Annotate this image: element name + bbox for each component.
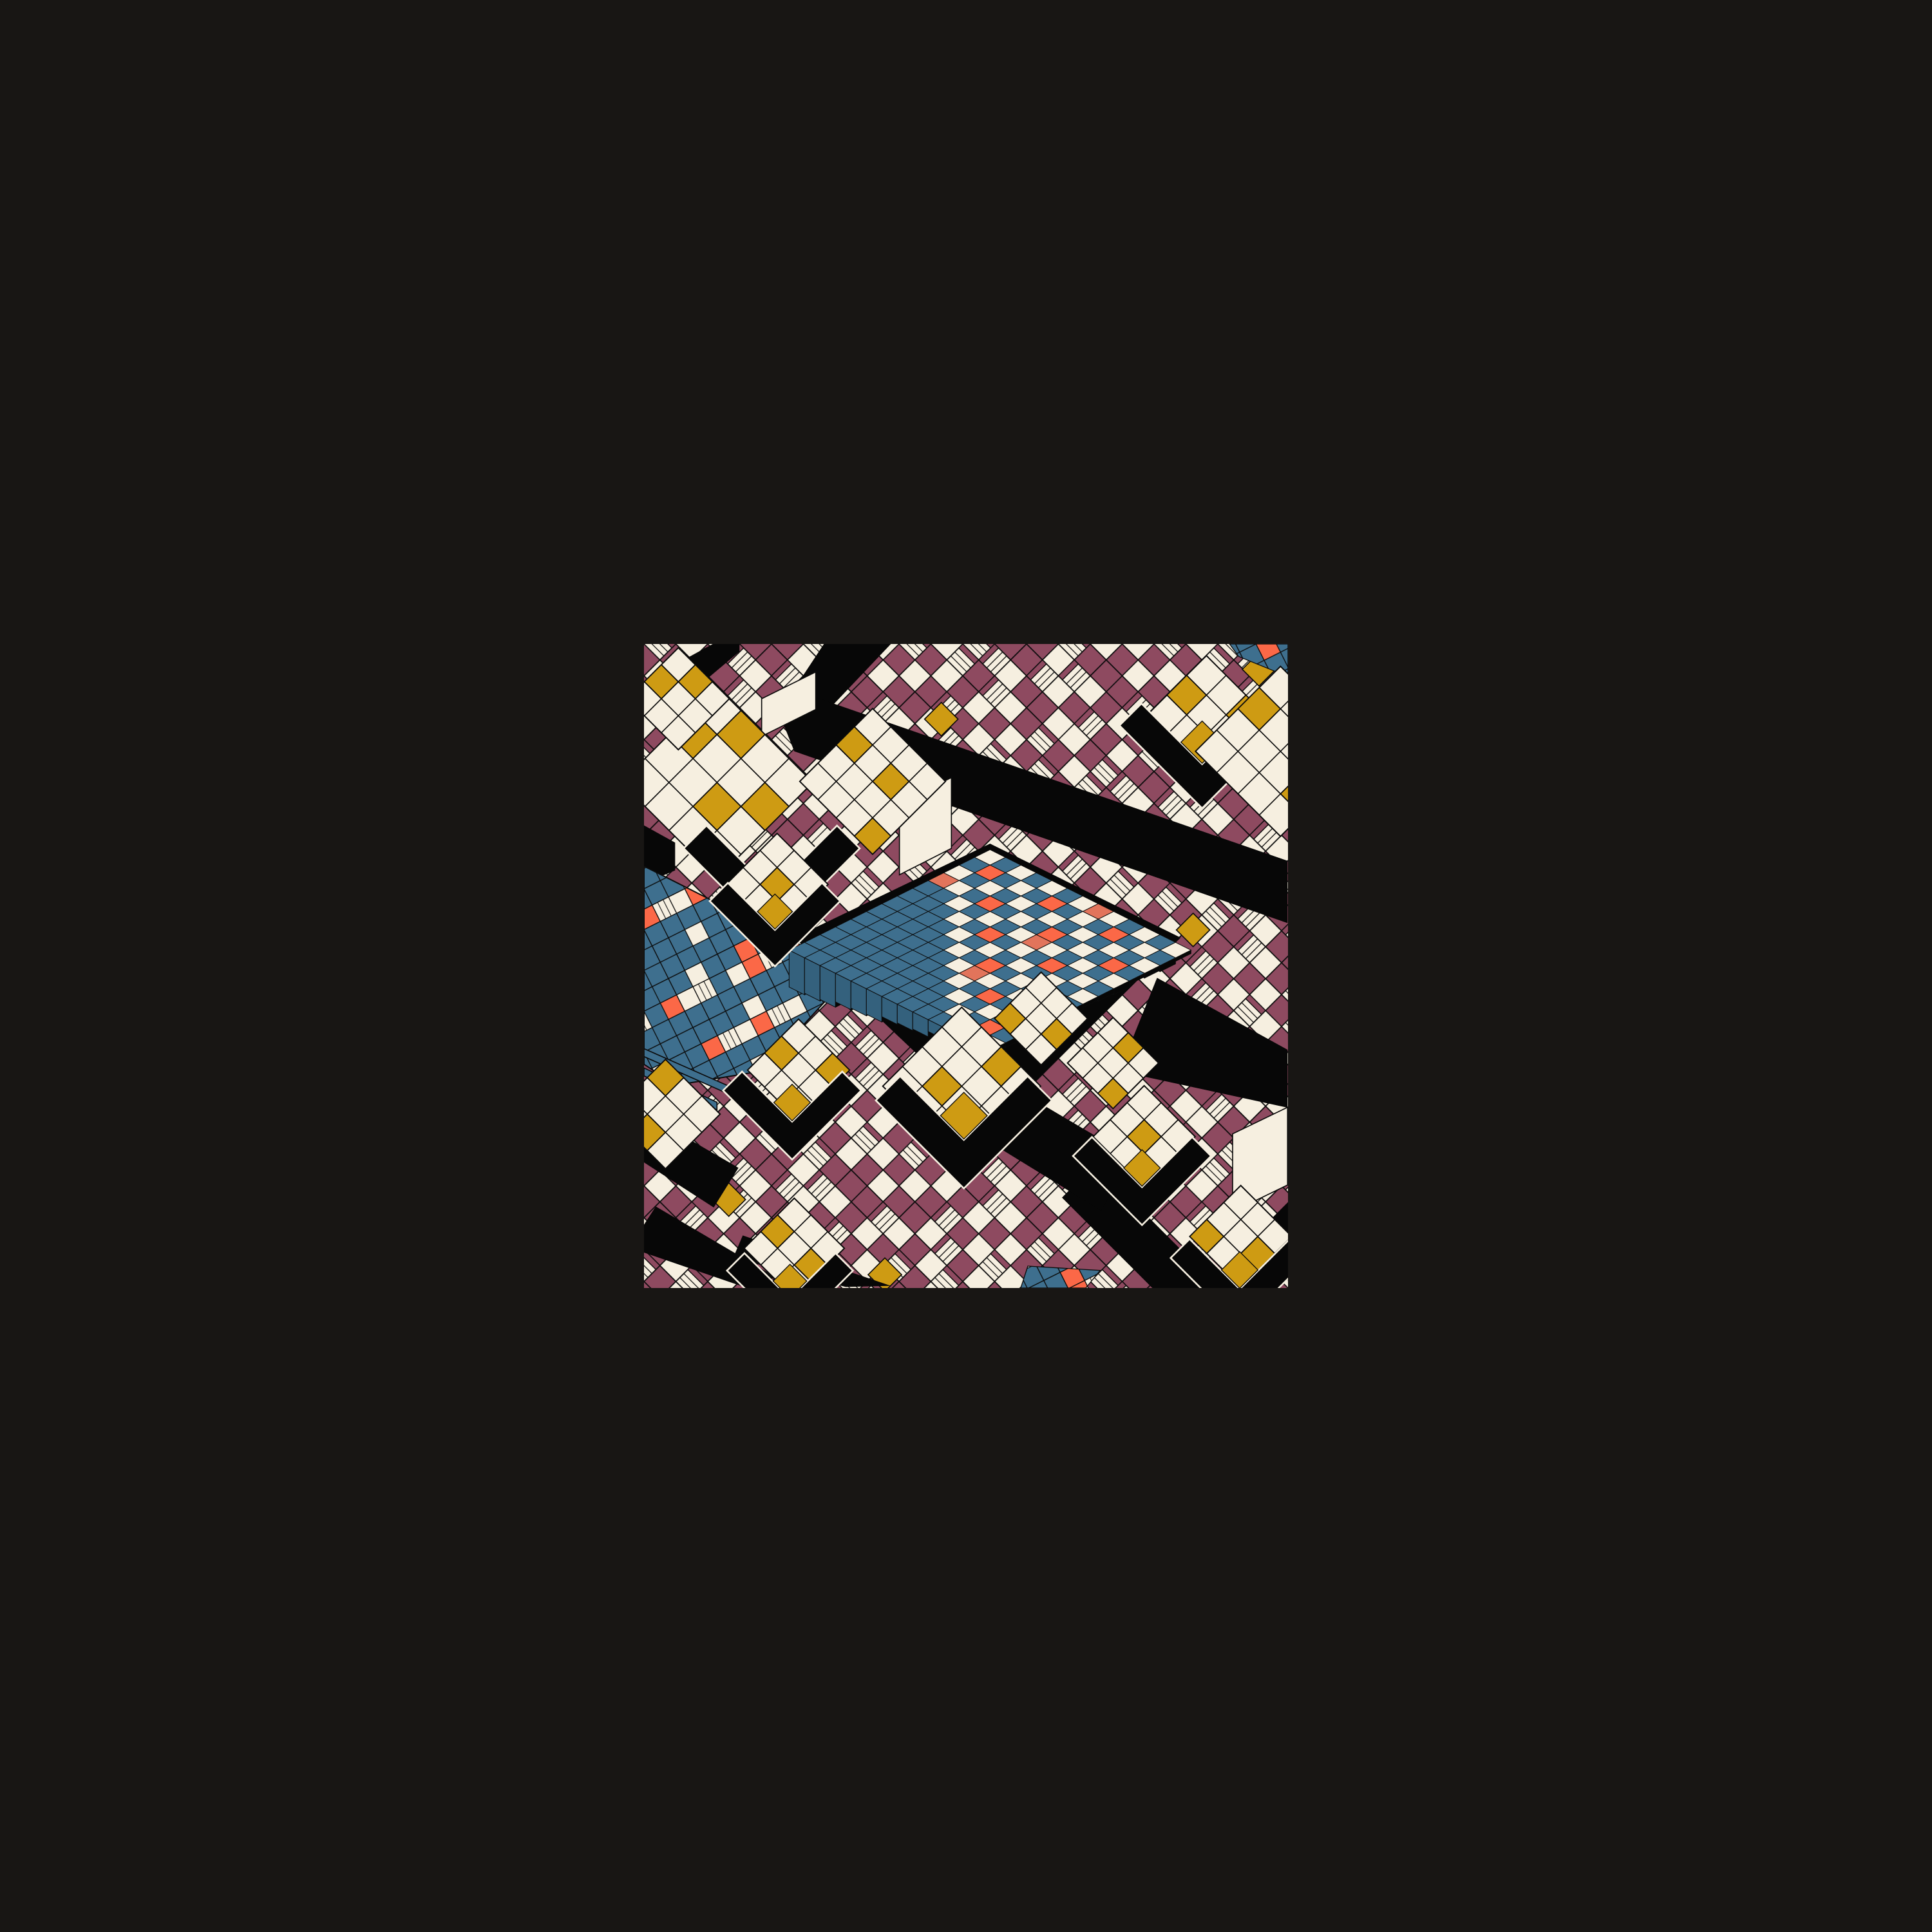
artwork-canvas	[644, 644, 1288, 1288]
generative-art-svg	[644, 644, 1288, 1288]
blue-corner-piece	[1021, 1266, 1100, 1288]
